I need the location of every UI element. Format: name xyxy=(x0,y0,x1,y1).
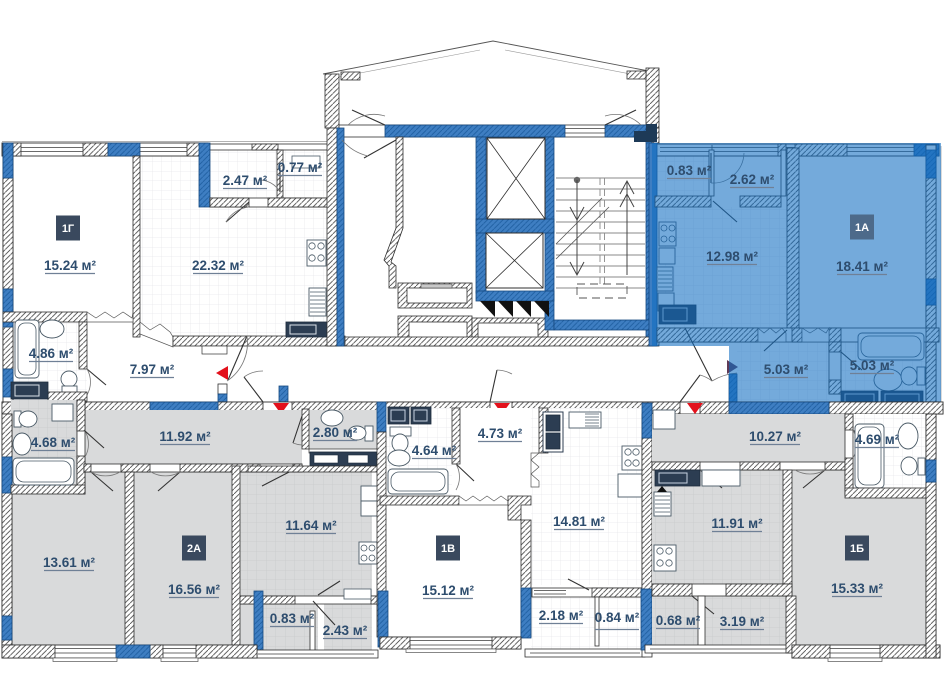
svg-text:0.77 м²: 0.77 м² xyxy=(278,160,323,175)
svg-text:15.12 м²: 15.12 м² xyxy=(422,583,475,598)
svg-text:12.98 м²: 12.98 м² xyxy=(706,249,759,264)
svg-text:7.97 м²: 7.97 м² xyxy=(130,362,175,377)
svg-text:2.18 м²: 2.18 м² xyxy=(539,608,584,623)
svg-text:0.68 м²: 0.68 м² xyxy=(656,613,701,628)
svg-text:2.43 м²: 2.43 м² xyxy=(323,623,368,638)
svg-text:13.61 м²: 13.61 м² xyxy=(43,555,96,570)
svg-text:4.64 м²: 4.64 м² xyxy=(412,443,457,458)
svg-text:4.73 м²: 4.73 м² xyxy=(478,426,523,441)
svg-text:15.24 м²: 15.24 м² xyxy=(44,258,97,273)
svg-text:22.32 м²: 22.32 м² xyxy=(192,258,245,273)
svg-text:14.81 м²: 14.81 м² xyxy=(553,514,606,529)
svg-text:11.64 м²: 11.64 м² xyxy=(285,518,337,533)
svg-text:1Г: 1Г xyxy=(62,223,75,235)
svg-text:15.33 м²: 15.33 м² xyxy=(831,581,884,596)
svg-text:0.83 м²: 0.83 м² xyxy=(270,611,315,626)
svg-text:4.86 м²: 4.86 м² xyxy=(29,346,74,361)
svg-text:18.41 м²: 18.41 м² xyxy=(836,259,889,274)
svg-text:1А: 1А xyxy=(855,222,869,234)
svg-text:1Б: 1Б xyxy=(850,543,864,555)
svg-text:0.84 м²: 0.84 м² xyxy=(595,610,640,625)
svg-text:2.80 м²: 2.80 м² xyxy=(313,425,358,440)
svg-text:16.56 м²: 16.56 м² xyxy=(168,582,221,597)
svg-text:2.62 м²: 2.62 м² xyxy=(730,172,775,187)
svg-text:10.27 м²: 10.27 м² xyxy=(749,429,802,444)
svg-text:11.91 м²: 11.91 м² xyxy=(711,516,763,531)
svg-text:4.69 м²: 4.69 м² xyxy=(855,432,900,447)
svg-text:5.03 м²: 5.03 м² xyxy=(764,362,809,377)
svg-text:1В: 1В xyxy=(441,543,455,555)
svg-text:4.68 м²: 4.68 м² xyxy=(31,435,76,450)
svg-text:2А: 2А xyxy=(187,543,201,555)
svg-text:2.47 м²: 2.47 м² xyxy=(223,173,268,188)
svg-text:11.92 м²: 11.92 м² xyxy=(159,429,211,444)
svg-text:5.03 м²: 5.03 м² xyxy=(850,358,895,373)
svg-text:3.19 м²: 3.19 м² xyxy=(720,614,765,629)
svg-text:0.83 м²: 0.83 м² xyxy=(667,163,712,178)
